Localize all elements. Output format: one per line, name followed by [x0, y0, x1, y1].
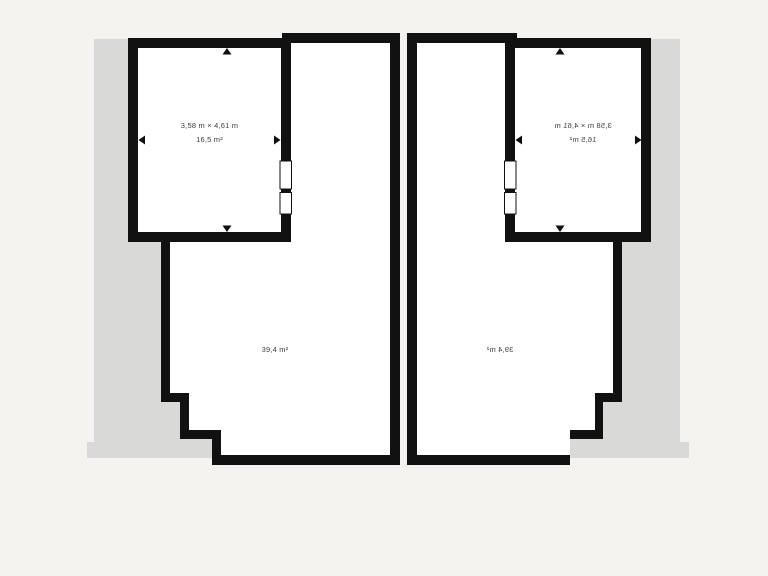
- left-room-window-upper: [280, 161, 292, 189]
- left-room-area: 16,5 m²: [138, 133, 281, 147]
- left-room-label: 3,58 m × 4,61 m 16,5 m²: [138, 119, 281, 147]
- right-room-area: 16,5 m²: [518, 133, 648, 147]
- left-room-window-lower: [280, 193, 292, 215]
- right-living-label: 39,4 m²: [405, 343, 595, 357]
- right-living-area: 39,4 m²: [405, 343, 595, 357]
- floorplan-svg: [0, 0, 768, 576]
- left-living-area: 39,4 m²: [165, 343, 385, 357]
- left-room-dimensions: 3,58 m × 4,61 m: [138, 119, 281, 133]
- right-room-window-lower: [505, 193, 517, 215]
- floorplan-canvas: 3,58 m × 4,61 m 16,5 m² 39,4 m² 3,58 m ×…: [0, 0, 768, 576]
- left-living-label: 39,4 m²: [165, 343, 385, 357]
- right-room-dimensions: 3,58 m × 4,61 m: [518, 119, 648, 133]
- right-room-window-upper: [505, 161, 517, 189]
- right-room-label: 3,58 m × 4,61 m 16,5 m²: [518, 119, 648, 147]
